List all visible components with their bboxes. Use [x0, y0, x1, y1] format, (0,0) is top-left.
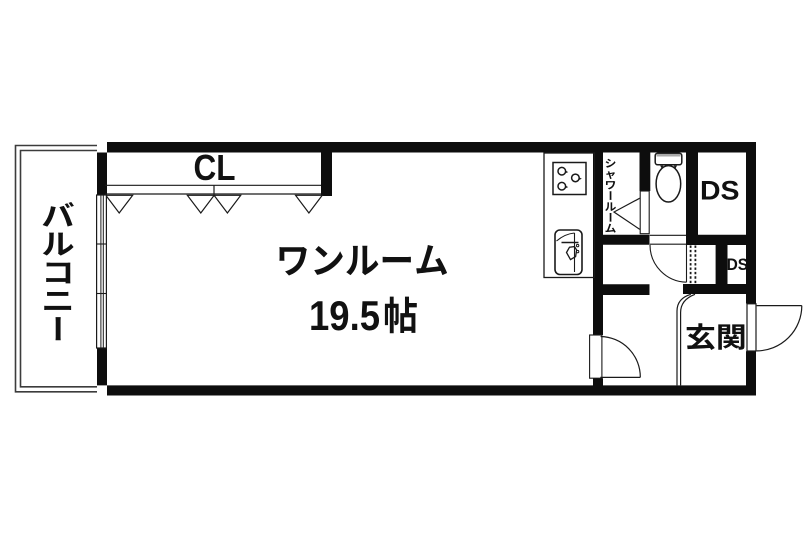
svg-text:19.5: 19.5 — [309, 292, 380, 339]
svg-text:DS: DS — [700, 175, 740, 205]
svg-text:CL: CL — [194, 147, 236, 188]
svg-text:DS: DS — [727, 256, 749, 274]
